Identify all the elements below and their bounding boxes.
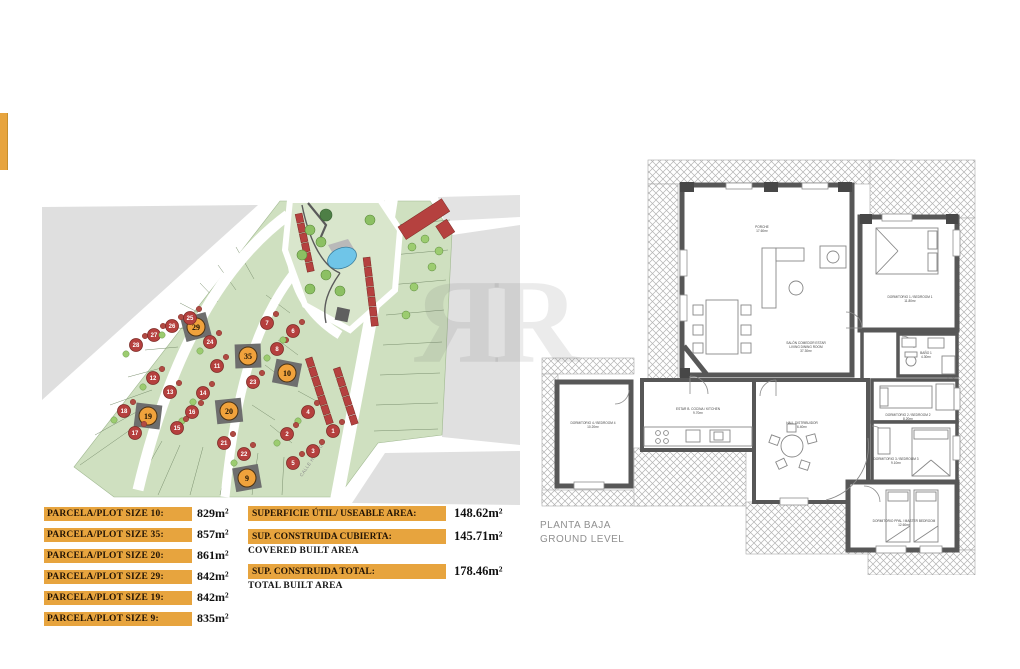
svg-text:23: 23 <box>250 380 257 386</box>
tree-icon <box>280 337 286 343</box>
plot-size-bar: PARCELA/PLOT SIZE 10: <box>44 507 192 521</box>
bush-icon <box>141 421 147 427</box>
brochure-page: ЯR CALLE HIN <box>0 0 1020 669</box>
highlighted-plot-marker: 19 <box>134 403 163 430</box>
svg-text:10: 10 <box>283 369 291 378</box>
area-value: 148.62m² <box>454 506 503 521</box>
area-bar: SUPERFICIE ÚTIL/ USEABLE AREA: <box>248 506 446 521</box>
room-label: 10.20m² <box>587 425 599 429</box>
highlighted-plot-marker: 20 <box>215 398 243 425</box>
svg-text:27: 27 <box>151 333 158 339</box>
plot-size-list: PARCELA/PLOT SIZE 10:829m²PARCELA/PLOT S… <box>44 506 229 632</box>
area-row-main: SUP. CONSTRUIDA CUBIERTA:145.71m² <box>248 529 518 544</box>
highlighted-plot-marker: 9 <box>232 464 262 492</box>
site-plan-map: CALLE HINOJO <box>40 195 520 510</box>
bush-icon <box>314 400 320 406</box>
bush-icon <box>159 366 165 372</box>
svg-text:19: 19 <box>144 412 152 421</box>
room-label: 17.60m² <box>756 229 768 233</box>
bush-icon <box>319 439 325 445</box>
bush-icon <box>223 354 229 360</box>
highlighted-plot-marker: 10 <box>272 359 302 388</box>
svg-text:9: 9 <box>245 474 249 483</box>
plot-size-label: PARCELA/PLOT SIZE 35: <box>44 530 164 540</box>
svg-text:26: 26 <box>169 324 176 330</box>
svg-text:20: 20 <box>225 407 233 416</box>
area-row: SUP. CONSTRUIDA TOTAL:178.46m²TOTAL BUIL… <box>248 564 518 591</box>
plot-size-label: PARCELA/PLOT SIZE 19: <box>44 593 164 603</box>
plot-size-bar: PARCELA/PLOT SIZE 19: <box>44 591 192 605</box>
area-value: 178.46m² <box>454 564 503 579</box>
tree-icon <box>123 351 129 357</box>
plot-size-row: PARCELA/PLOT SIZE 35:857m² <box>44 527 229 542</box>
area-row: SUPERFICIE ÚTIL/ USEABLE AREA:148.62m² <box>248 506 518 521</box>
bush-icon <box>216 330 222 336</box>
plot-size-value: 829m² <box>197 506 229 521</box>
area-bar: SUP. CONSTRUIDA TOTAL: <box>248 564 446 579</box>
plot-size-bar: PARCELA/PLOT SIZE 29: <box>44 570 192 584</box>
area-bar: SUP. CONSTRUIDA CUBIERTA: <box>248 529 446 544</box>
plot-size-value: 835m² <box>197 611 229 626</box>
room-label: 8.20m² <box>903 417 913 421</box>
svg-text:11: 11 <box>214 364 221 370</box>
plot-size-row: PARCELA/PLOT SIZE 19:842m² <box>44 590 229 605</box>
svg-text:12: 12 <box>150 376 157 382</box>
area-label: SUPERFICIE ÚTIL/ USEABLE AREA: <box>248 509 416 519</box>
plot-size-row: PARCELA/PLOT SIZE 10:829m² <box>44 506 229 521</box>
area-label: SUP. CONSTRUIDA TOTAL: <box>248 567 375 577</box>
tree-icon <box>140 384 146 390</box>
room-label: 9.70m² <box>693 411 703 415</box>
bush-icon <box>293 422 299 428</box>
svg-text:18: 18 <box>121 409 128 415</box>
svg-text:24: 24 <box>207 340 214 346</box>
room-label: 12.60m² <box>898 523 910 527</box>
area-value: 145.71m² <box>454 529 503 544</box>
svg-text:35: 35 <box>244 352 252 361</box>
park-building <box>335 307 350 322</box>
bush-icon <box>176 380 182 386</box>
plot-size-row: PARCELA/PLOT SIZE 20:861m² <box>44 548 229 563</box>
tree-icon <box>159 332 165 338</box>
area-row-main: SUP. CONSTRUIDA TOTAL:178.46m² <box>248 564 518 579</box>
plot-size-bar: PARCELA/PLOT SIZE 9: <box>44 612 192 626</box>
bush-icon <box>299 451 305 457</box>
tree-icon <box>111 417 117 423</box>
room-label: 11.80m² <box>904 299 915 303</box>
area-row-main: SUPERFICIE ÚTIL/ USEABLE AREA:148.62m² <box>248 506 518 521</box>
room-label: 6.40m² <box>797 425 807 429</box>
left-accent-bar <box>0 113 8 170</box>
floor-plan-title: PLANTA BAJA GROUND LEVEL <box>540 520 624 545</box>
svg-text:29: 29 <box>192 323 200 332</box>
bush-icon <box>196 306 202 312</box>
area-sublabel: TOTAL BUILT AREA <box>248 581 518 591</box>
bush-icon <box>130 399 136 405</box>
room-label: 4.30m² <box>921 355 931 359</box>
plot-size-row: PARCELA/PLOT SIZE 29:842m² <box>44 569 229 584</box>
area-row: SUP. CONSTRUIDA CUBIERTA:145.71m²COVERED… <box>248 529 518 556</box>
room-label: 37.30m² <box>800 349 812 353</box>
plot-size-label: PARCELA/PLOT SIZE 10: <box>44 509 164 519</box>
plot-size-value: 861m² <box>197 548 229 563</box>
bush-icon <box>299 319 305 325</box>
svg-text:13: 13 <box>167 390 174 396</box>
bush-icon <box>160 323 166 329</box>
tree-icon <box>190 399 196 405</box>
bush-icon <box>198 400 204 406</box>
tree-icon <box>264 355 270 361</box>
plot-size-label: PARCELA/PLOT SIZE 9: <box>44 614 159 624</box>
tree-icon <box>197 348 203 354</box>
bush-icon <box>339 419 345 425</box>
plot-size-bar: PARCELA/PLOT SIZE 35: <box>44 528 192 542</box>
plot-size-label: PARCELA/PLOT SIZE 29: <box>44 572 164 582</box>
area-label: SUP. CONSTRUIDA CUBIERTA: <box>248 532 392 542</box>
bush-icon <box>250 442 256 448</box>
svg-text:22: 22 <box>241 452 248 458</box>
plot-size-row: PARCELA/PLOT SIZE 9:835m² <box>44 611 229 626</box>
area-summary: SUPERFICIE ÚTIL/ USEABLE AREA:148.62m²SU… <box>248 506 518 599</box>
svg-text:14: 14 <box>200 391 207 397</box>
area-sublabel: COVERED BUILT AREA <box>248 546 518 556</box>
svg-text:16: 16 <box>189 410 196 416</box>
plot-size-bar: PARCELA/PLOT SIZE 20: <box>44 549 192 563</box>
plot-marker: 28 <box>123 333 148 357</box>
bush-icon <box>178 314 184 320</box>
svg-text:21: 21 <box>221 441 228 447</box>
bush-icon <box>273 311 279 317</box>
svg-text:17: 17 <box>132 431 139 437</box>
bush-icon <box>209 381 215 387</box>
bush-icon <box>142 333 148 339</box>
highlighted-plot-marker: 35 <box>235 344 262 369</box>
plot-size-value: 857m² <box>197 527 229 542</box>
bush-icon <box>183 416 189 422</box>
plot-size-value: 842m² <box>197 569 229 584</box>
plot-size-value: 842m² <box>197 590 229 605</box>
room-label: 9.10m² <box>891 461 901 465</box>
tree-icon <box>231 460 237 466</box>
svg-text:15: 15 <box>174 426 181 432</box>
svg-text:25: 25 <box>187 316 194 322</box>
bush-icon <box>259 370 265 376</box>
tree-icon <box>274 440 280 446</box>
plan-title-line1: PLANTA BAJA <box>540 520 611 531</box>
svg-text:28: 28 <box>133 343 140 349</box>
bush-icon <box>230 431 236 437</box>
floor-plan: PORCHE17.60m²SALÓN COMEDOR ESTARLIVING D… <box>530 130 1000 575</box>
plot-size-label: PARCELA/PLOT SIZE 20: <box>44 551 164 561</box>
plan-title-line2: GROUND LEVEL <box>540 534 624 545</box>
